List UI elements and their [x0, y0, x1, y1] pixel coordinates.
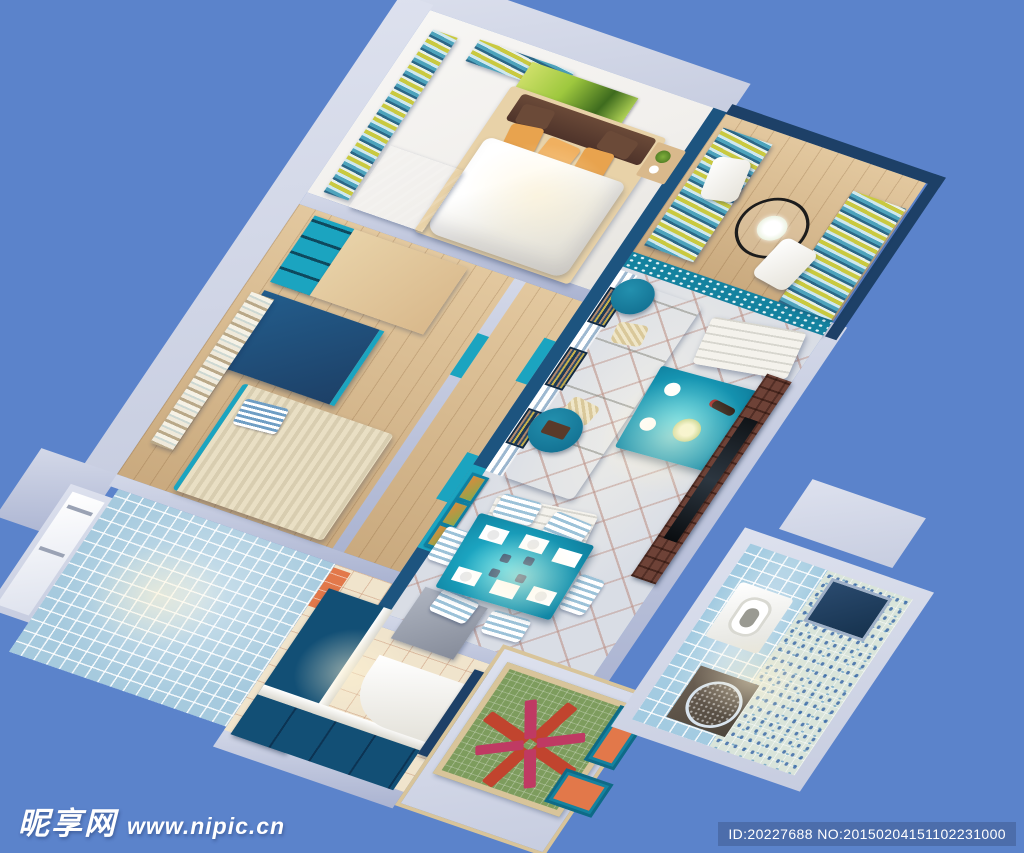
image-id-bar: ID:20227688 NO:20150204151102231000 [718, 822, 1016, 846]
napkin [522, 556, 535, 566]
nipic-logo-text: 昵享网 [18, 798, 117, 843]
plate [637, 416, 659, 433]
placemat [551, 548, 582, 568]
placemat [489, 579, 520, 599]
stock-photo-canvas: 昵享网 www.nipic.cn ID:20227688 NO:20150204… [0, 0, 1024, 853]
napkin [514, 574, 527, 584]
plate [661, 381, 683, 398]
planter-soil [553, 775, 605, 811]
rug-pinwheel-arm [524, 749, 537, 789]
wine-bottle [710, 399, 737, 416]
book-on-table [540, 420, 571, 440]
nipic-watermark: 昵享网 www.nipic.cn [18, 798, 285, 843]
napkin [488, 568, 501, 578]
nipic-url-text: www.nipic.cn [127, 813, 285, 840]
rug-pinwheel-arm [524, 699, 537, 739]
flower-centerpiece [668, 416, 706, 445]
napkin [499, 553, 512, 563]
toilet-drain [737, 606, 763, 629]
